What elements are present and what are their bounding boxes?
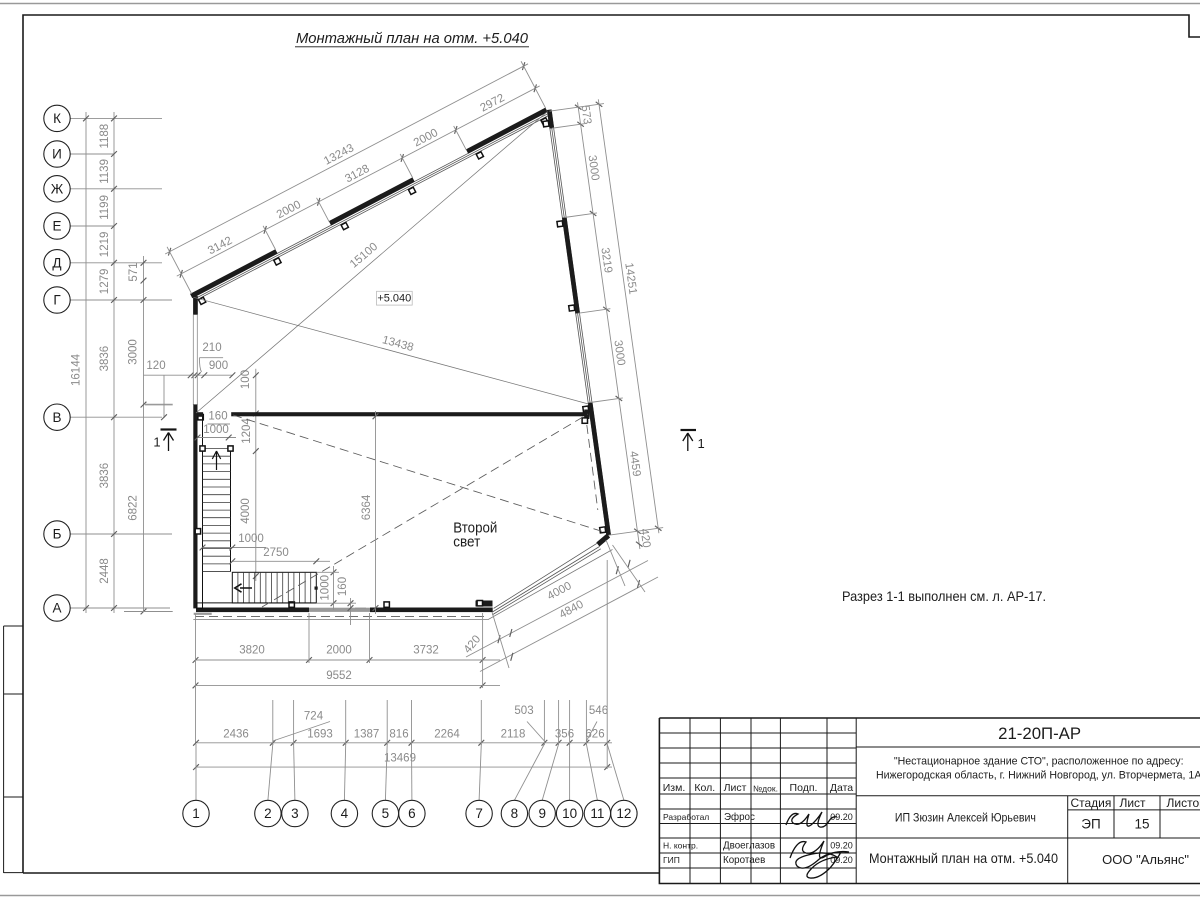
svg-text:1279: 1279: [99, 269, 111, 295]
svg-text:Лист: Лист: [1119, 796, 1146, 810]
svg-text:Н. контр.: Н. контр.: [663, 841, 698, 851]
svg-text:Ж: Ж: [51, 181, 64, 196]
svg-text:1204: 1204: [241, 418, 253, 444]
svg-text:Дата: Дата: [830, 782, 853, 794]
svg-text:7: 7: [475, 806, 483, 821]
svg-text:В: В: [52, 410, 61, 425]
svg-text:А: А: [52, 601, 61, 616]
svg-text:160: 160: [337, 577, 349, 596]
svg-text:Стадия: Стадия: [1070, 796, 1111, 810]
svg-text:Д: Д: [52, 255, 61, 270]
svg-text:1: 1: [192, 806, 200, 821]
svg-text:"Нестационарное здание СТО", р: "Нестационарное здание СТО", расположенн…: [894, 756, 1184, 768]
svg-text:900: 900: [209, 360, 228, 372]
svg-text:626: 626: [585, 728, 604, 740]
svg-text:1693: 1693: [307, 728, 333, 740]
svg-text:21-20П-АР: 21-20П-АР: [998, 724, 1081, 743]
svg-text:Б: Б: [53, 527, 62, 542]
svg-text:Разработал: Разработал: [663, 812, 709, 822]
svg-text:09.20: 09.20: [830, 841, 853, 851]
svg-text:4000: 4000: [240, 498, 252, 524]
svg-text:Монтажный план на отм. +5.040: Монтажный план на отм. +5.040: [296, 30, 529, 47]
svg-text:1000: 1000: [238, 533, 264, 545]
svg-text:3000: 3000: [128, 339, 140, 365]
svg-text:Разрез 1-1 выполнен см. л. АР-: Разрез 1-1 выполнен см. л. АР-17.: [842, 588, 1046, 604]
svg-text:356: 356: [555, 728, 574, 740]
svg-text:8: 8: [511, 806, 519, 821]
svg-text:3820: 3820: [239, 645, 265, 657]
svg-text:ГИП: ГИП: [663, 855, 680, 865]
svg-text:160: 160: [208, 411, 227, 423]
svg-text:4: 4: [341, 806, 349, 821]
svg-text:100: 100: [240, 370, 252, 389]
svg-text:6822: 6822: [128, 495, 140, 521]
svg-text:3: 3: [291, 806, 299, 821]
svg-text:210: 210: [202, 342, 221, 354]
svg-text:6364: 6364: [361, 494, 373, 520]
svg-text:Монтажный план на отм. +5.040: Монтажный план на отм. +5.040: [869, 850, 1058, 866]
svg-text:+5.040: +5.040: [377, 293, 411, 305]
svg-text:ООО "Альянс": ООО "Альянс": [1102, 852, 1189, 867]
svg-text:1188: 1188: [99, 124, 111, 149]
svg-text:3836: 3836: [99, 346, 111, 372]
svg-text:1: 1: [153, 435, 160, 450]
svg-text:724: 724: [304, 711, 324, 723]
svg-text:Коротаев: Коротаев: [723, 855, 765, 866]
svg-text:571: 571: [128, 262, 140, 281]
svg-text:2750: 2750: [263, 547, 289, 559]
svg-text:16144: 16144: [71, 353, 83, 386]
svg-text:1139: 1139: [99, 159, 111, 184]
svg-text:1199: 1199: [99, 195, 111, 220]
svg-text:Нижегородская область, г. Нижн: Нижегородская область, г. Нижний Новгоро…: [876, 769, 1200, 781]
svg-text:9: 9: [538, 806, 546, 821]
svg-text:Двоеглазов: Двоеглазов: [723, 841, 775, 852]
svg-text:ЭП: ЭП: [1081, 817, 1100, 832]
svg-text:И: И: [52, 147, 62, 162]
svg-text:3732: 3732: [413, 645, 439, 657]
svg-text:120: 120: [146, 360, 165, 372]
svg-text:1219: 1219: [99, 232, 111, 258]
svg-text:Подп.: Подп.: [790, 782, 818, 794]
svg-text:12: 12: [616, 806, 631, 821]
svg-text:К: К: [53, 111, 61, 126]
svg-text:№док.: №док.: [753, 784, 778, 794]
svg-text:15: 15: [1134, 817, 1149, 832]
svg-text:2000: 2000: [326, 645, 352, 657]
svg-text:Изм.: Изм.: [663, 782, 686, 794]
svg-text:816: 816: [389, 728, 408, 740]
svg-text:1: 1: [698, 436, 705, 451]
svg-text:1387: 1387: [354, 728, 380, 740]
svg-text:ИП Зюзин Алексей Юрьевич: ИП Зюзин Алексей Юрьевич: [895, 811, 1036, 825]
svg-text:Г: Г: [53, 293, 61, 308]
svg-text:11: 11: [590, 806, 604, 821]
svg-text:3836: 3836: [99, 463, 111, 489]
svg-text:свет: свет: [453, 534, 480, 551]
svg-text:2448: 2448: [99, 558, 111, 584]
svg-text:1000: 1000: [320, 575, 332, 601]
svg-text:1000: 1000: [203, 424, 229, 436]
svg-text:2: 2: [264, 806, 272, 821]
svg-text:9552: 9552: [326, 670, 352, 682]
svg-text:2264: 2264: [434, 728, 460, 740]
svg-text:546: 546: [589, 705, 608, 717]
svg-text:Кол.: Кол.: [694, 782, 715, 794]
svg-text:2118: 2118: [501, 728, 526, 740]
svg-text:6: 6: [408, 806, 416, 821]
svg-text:Эфрос: Эфрос: [724, 812, 755, 823]
svg-text:2436: 2436: [223, 728, 249, 740]
svg-text:503: 503: [514, 705, 533, 717]
svg-text:Е: Е: [52, 219, 61, 234]
svg-text:Листов: Листов: [1167, 796, 1200, 810]
svg-text:5: 5: [382, 806, 390, 821]
svg-text:10: 10: [562, 806, 577, 821]
svg-text:Лист: Лист: [724, 782, 747, 794]
